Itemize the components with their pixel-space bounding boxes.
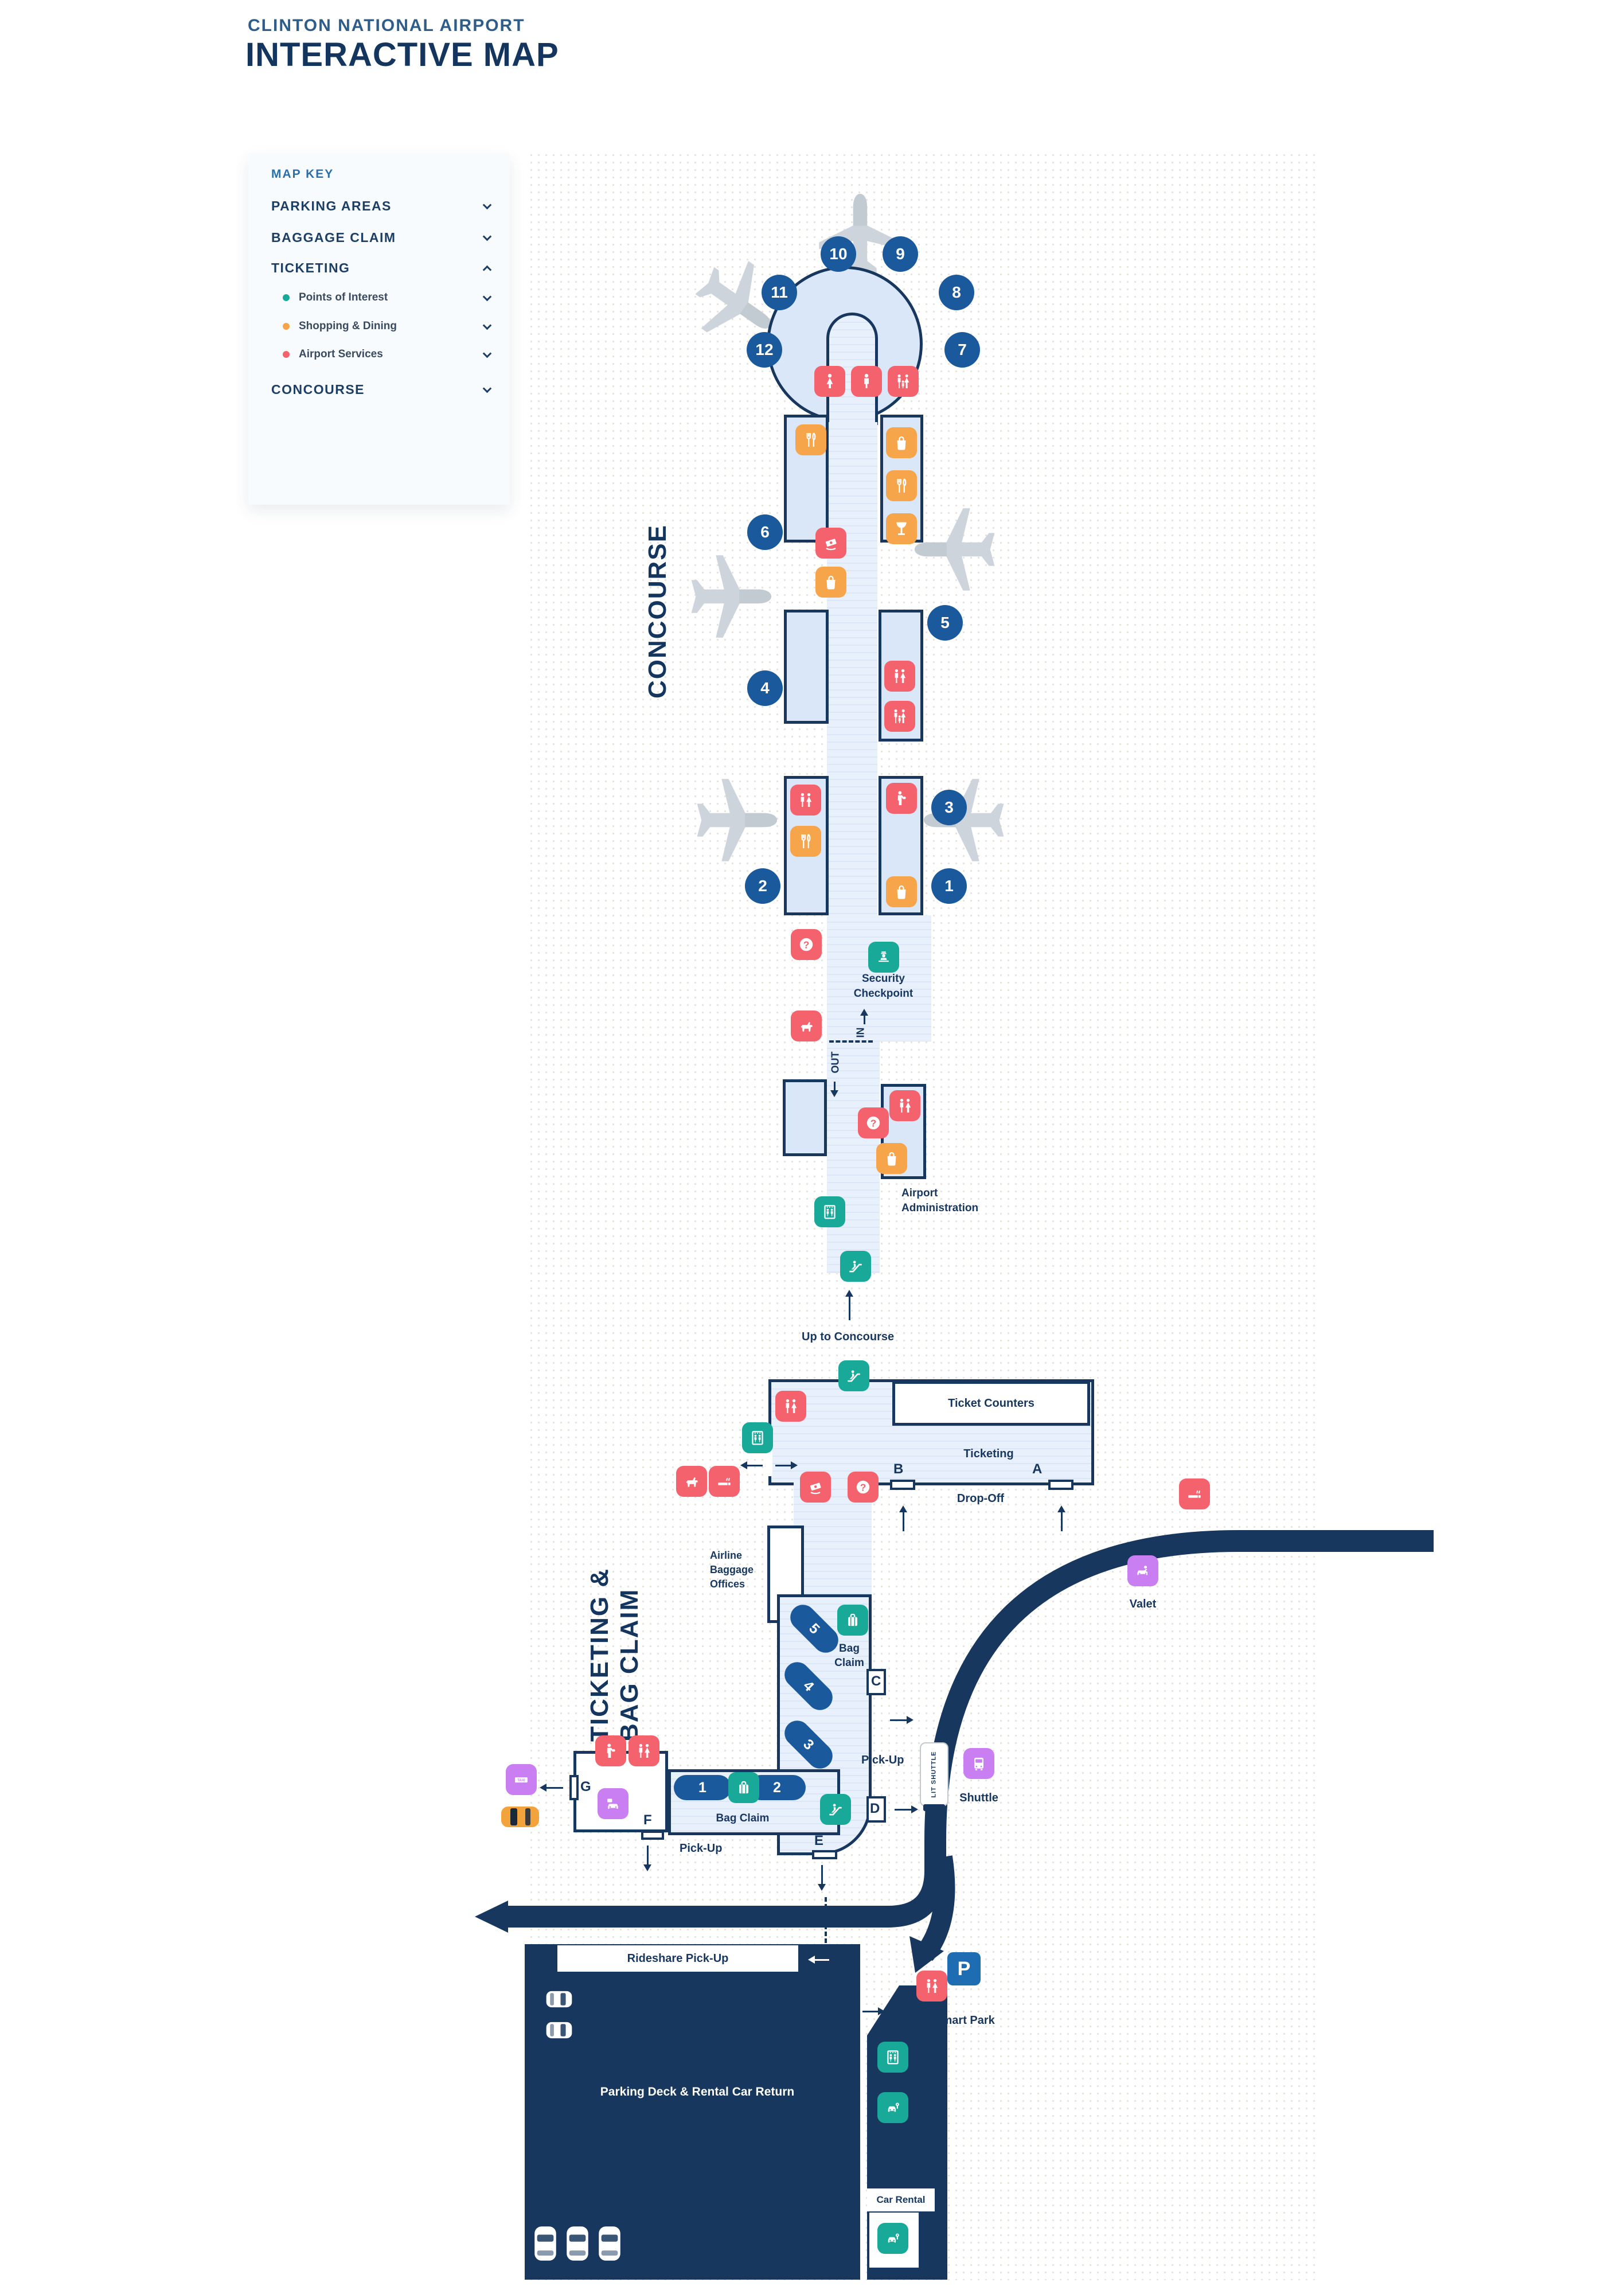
door-d-label: D	[870, 1801, 880, 1817]
door-f-arrow-icon	[642, 1846, 653, 1875]
badge-elevator[interactable]	[877, 2042, 908, 2073]
rental-car-key-icon	[884, 2229, 902, 2248]
elevator-icon	[884, 2048, 902, 2066]
parked-car	[545, 2009, 573, 2051]
svg-text:TAXI: TAXI	[517, 1778, 525, 1782]
deck-exit-arrow-icon	[862, 2006, 889, 2016]
bag-claim-label-south: Bag Claim	[705, 1811, 780, 1826]
door-c-arrow-icon	[890, 1715, 918, 1725]
parking-deck-label: Parking Deck & Rental Car Return	[562, 2085, 833, 2099]
taxi-car	[500, 1804, 540, 1829]
bag-claim-icon	[735, 1778, 753, 1797]
door-e-arrow-icon	[817, 1865, 827, 1895]
parked-car	[532, 2225, 559, 2262]
pick-up-east-label: Pick-Up	[861, 1753, 904, 1768]
lit-shuttle-label: LIT SHUTTLE	[931, 1751, 938, 1797]
badge-rental-car-key[interactable]	[877, 2223, 908, 2254]
badge-shuttle[interactable]	[963, 1748, 994, 1779]
shuttle-label: Shuttle	[947, 1790, 1010, 1805]
badge-taxi[interactable]: TAXI	[506, 1764, 537, 1795]
parking-icon[interactable]: P	[947, 1952, 981, 1985]
door-f-notch	[641, 1831, 664, 1840]
badge-restroom[interactable]	[628, 1735, 659, 1766]
shuttle-bus: LIT SHUTTLE	[920, 1742, 948, 1807]
nursing-room-icon	[602, 1742, 620, 1760]
badge-bag-claim[interactable]	[837, 1605, 868, 1636]
rental-car-key-icon	[884, 2098, 902, 2117]
parked-car	[564, 2225, 591, 2262]
valet-label: Valet	[1111, 1597, 1174, 1612]
crosswalk-dashed-line	[825, 1897, 827, 1950]
badge-rental-car-key[interactable]	[877, 2092, 908, 2123]
valet-icon	[1134, 1562, 1152, 1580]
door-g-arrow-icon	[536, 1782, 563, 1793]
rideshare-arrow-icon	[804, 1954, 829, 1965]
badge-smoking[interactable]	[1179, 1478, 1210, 1509]
restroom-icon	[635, 1742, 653, 1760]
rideshare-pick-up-zone: Rideshare Pick-Up	[557, 1945, 798, 1972]
shuttle-bumper	[923, 1804, 945, 1811]
badge-nursing-room[interactable]	[595, 1735, 626, 1766]
parked-car	[596, 2225, 623, 2262]
badge-escalator[interactable]	[820, 1794, 851, 1825]
badge-valet[interactable]	[1127, 1555, 1158, 1586]
escalator-icon	[826, 1800, 845, 1819]
badge-rental-car[interactable]	[598, 1788, 628, 1819]
bag-claim-icon	[844, 1611, 862, 1629]
pick-up-south-label: Pick-Up	[680, 1841, 722, 1856]
smoking-icon	[1185, 1485, 1204, 1503]
carousel-1: 1	[674, 1775, 731, 1800]
door-c-label: C	[871, 1673, 881, 1690]
bag-claim-label: BagClaim	[825, 1641, 874, 1670]
shuttle-bus-icon	[970, 1754, 988, 1773]
badge-bag-claim[interactable]	[728, 1772, 759, 1803]
interactive-map-page: CLINTON NATIONAL AIRPORT INTERACTIVE MAP…	[0, 0, 1624, 2294]
door-f-label: F	[643, 1812, 652, 1828]
door-e-notch	[812, 1850, 837, 1859]
door-g-label: G	[580, 1779, 591, 1795]
restroom-icon	[923, 1977, 941, 1995]
door-e-label: E	[814, 1833, 823, 1849]
car-rental-sign: Car Rental	[867, 2188, 935, 2211]
badge-restroom[interactable]	[916, 1971, 947, 2002]
door-g-notch	[569, 1775, 579, 1800]
taxi-icon: TAXI	[512, 1770, 530, 1789]
door-d-arrow-icon	[895, 1804, 922, 1815]
rental-car-icon	[604, 1794, 622, 1813]
